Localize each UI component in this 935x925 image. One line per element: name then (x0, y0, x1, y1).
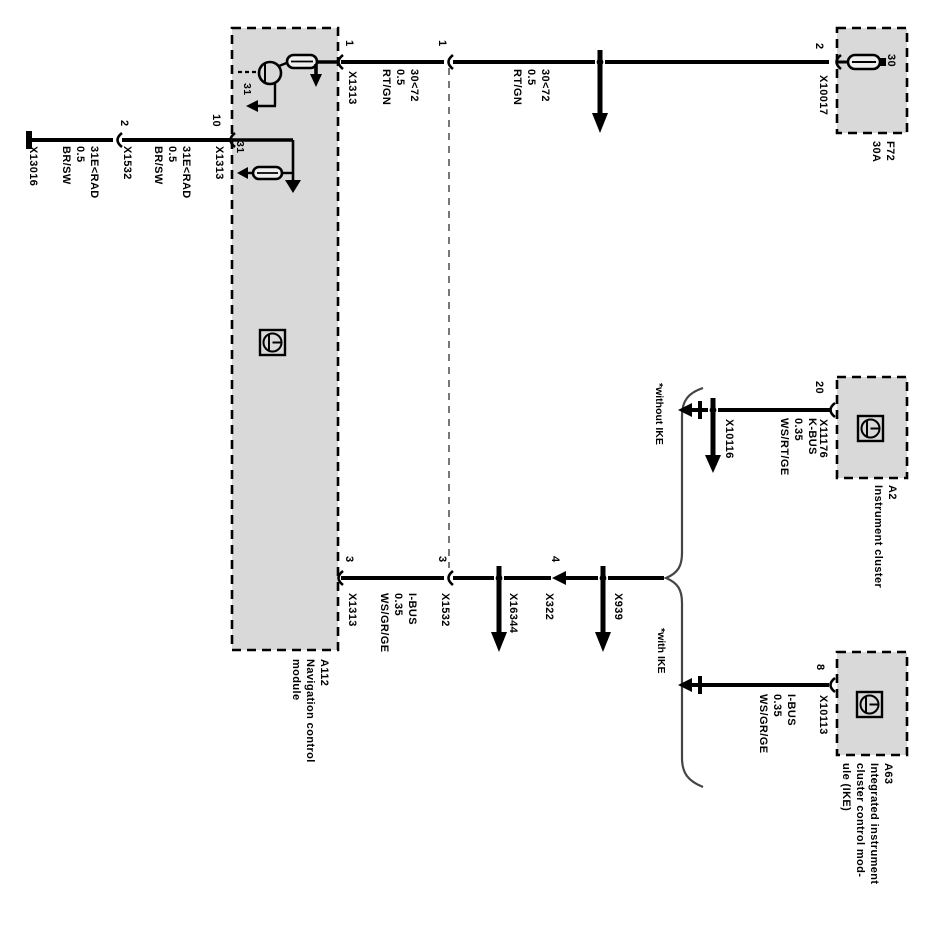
connector-arc-conn1 (449, 55, 454, 69)
pin8-number: 8 (813, 664, 827, 671)
pin20-number: 20 (812, 381, 826, 394)
pin10-connector: X1313 (212, 146, 226, 180)
wire-ibus-variant (678, 676, 829, 694)
conn1-pin-number: 1 (435, 40, 449, 47)
pin10-number: 10 (209, 114, 223, 127)
fuse-f72-label: F72 30A (869, 141, 897, 162)
wire-label-ibus-ike: I-BUS 0.35 WS/GR/GE (756, 694, 798, 753)
pin3-connector: X1313 (345, 593, 359, 627)
module-a112-label: A112 Navigation control module (289, 659, 331, 763)
connector-arc-conn2 (118, 133, 123, 147)
pin3-number: 3 (342, 556, 356, 563)
fuse-symbol (833, 55, 887, 69)
conn4-label: X322 (542, 593, 556, 620)
ground-label-x13016: X13016 (26, 146, 40, 186)
connector-arc-pin20 (831, 403, 836, 417)
wire-label-ibus-trunk: I-BUS 0.35 WS/GR/GE (377, 593, 419, 652)
pin8-connector: X10113 (816, 695, 830, 735)
wire-label-ground-left: 31E<RAD 0.5 BR/SW (59, 146, 101, 199)
variant-without-ike-label: *without IKE (652, 383, 666, 445)
pin2-number: 2 (812, 43, 826, 50)
fuse-terminal-30: 30 (884, 54, 898, 67)
conn3-label: X1532 (438, 593, 452, 627)
module-a63-label: A63 Integrated instrument cluster contro… (839, 763, 895, 884)
junction-x10116-label: X10116 (722, 419, 736, 459)
variant-brace (666, 388, 703, 787)
pin20-connector: X11176 (816, 419, 830, 458)
connector-arc-pin8 (831, 678, 836, 692)
conn4-pin-number: 4 (548, 556, 562, 563)
connector-arc-conn3 (449, 571, 454, 585)
pin1-number: 1 (342, 40, 356, 47)
pin2-connector: X10017 (816, 75, 830, 115)
wiring-diagram: X13016 31E<RAD 0.5 BR/SW 2 X1532 31E<RAD… (0, 0, 935, 925)
wire-label-power-left: 30<72 0.5 RT/GN (379, 69, 421, 105)
junction-x16344-label: X16344 (506, 593, 520, 633)
conn3-pin-number: 3 (435, 556, 449, 563)
wire-label-kbus: K-BUS 0.35 WS/RT/GE (777, 418, 819, 476)
connector-x322-arrow (552, 571, 566, 585)
internal-ground-31-bottom: 31 (233, 141, 247, 153)
conn2-pin-number: 2 (117, 120, 131, 127)
wire-label-ground-right: 31E<RAD 0.5 BR/SW (151, 146, 193, 199)
wire-label-power-right: 30<72 0.5 RT/GN (510, 69, 552, 105)
pin1-connector: X1313 (345, 71, 359, 105)
internal-ground-31-top: 31 (240, 83, 254, 95)
fuse-f72-box (837, 28, 907, 133)
conn2-label: X1532 (120, 146, 134, 180)
junction-x939-label: X939 (611, 593, 625, 620)
variant-with-ike-label: *with IKE (654, 628, 668, 674)
module-a2-label: A2 Instrument cluster (871, 485, 899, 588)
